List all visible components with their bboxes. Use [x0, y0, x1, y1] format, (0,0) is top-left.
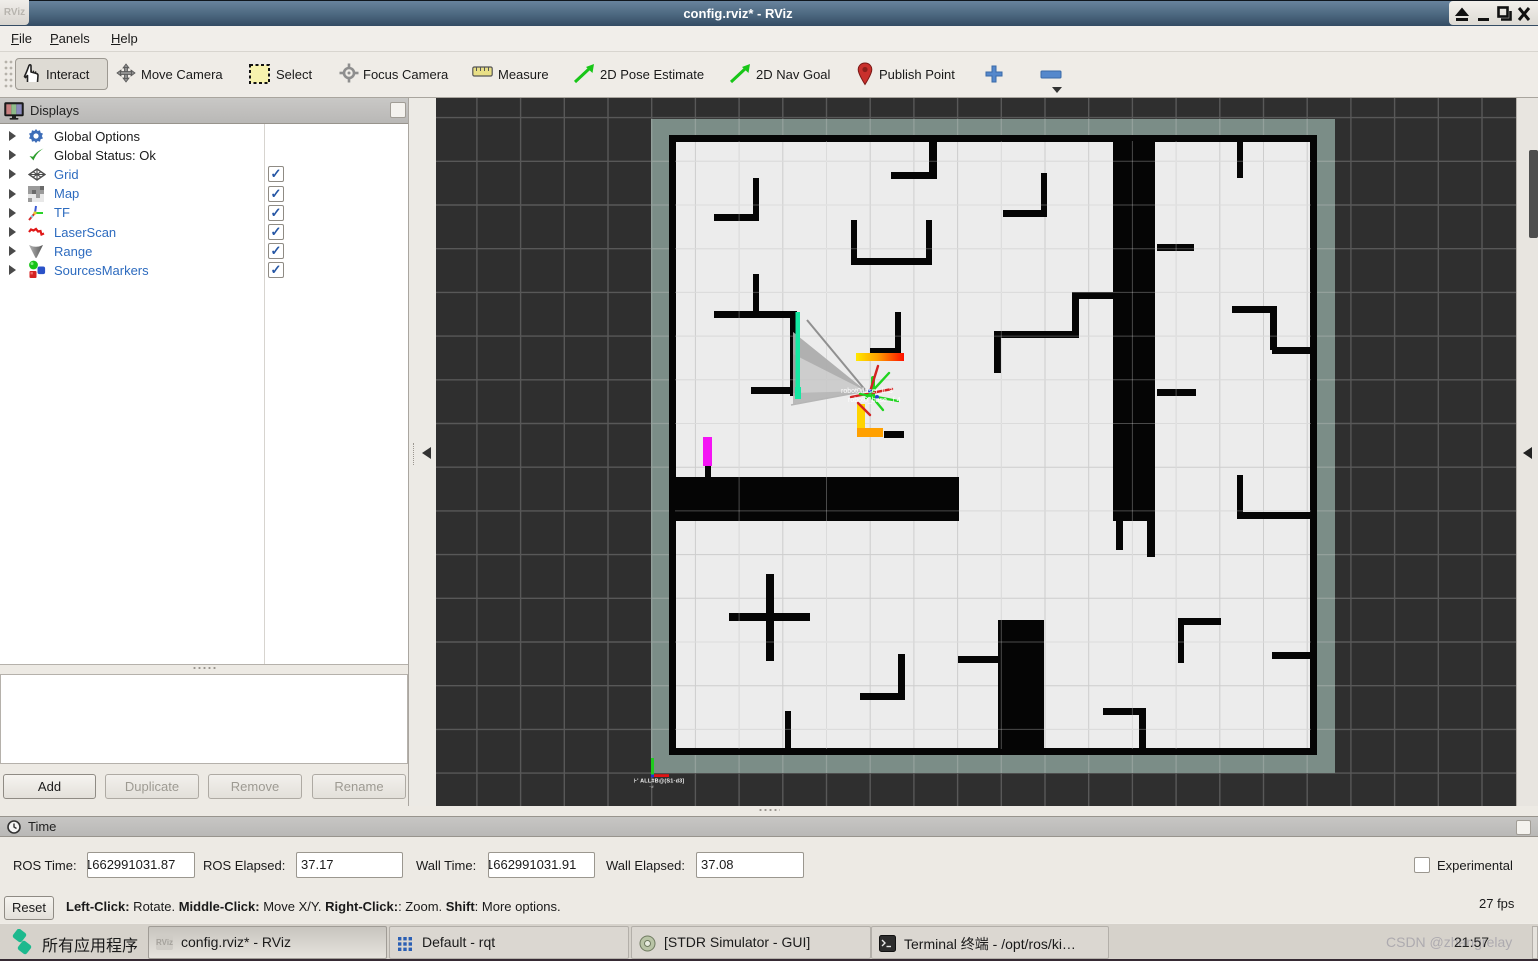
svg-text:~#: ~# — [649, 784, 654, 789]
svg-text:⊦' ALL#B@(S1·d3]: ⊦' ALL#B@(S1·d3] — [634, 778, 684, 785]
svg-text:robot0_base...f 4: robot0_base...f 4 — [848, 397, 901, 404]
svg-text:robot0/laser_li..3: robot0/laser_li..3 — [841, 388, 893, 395]
